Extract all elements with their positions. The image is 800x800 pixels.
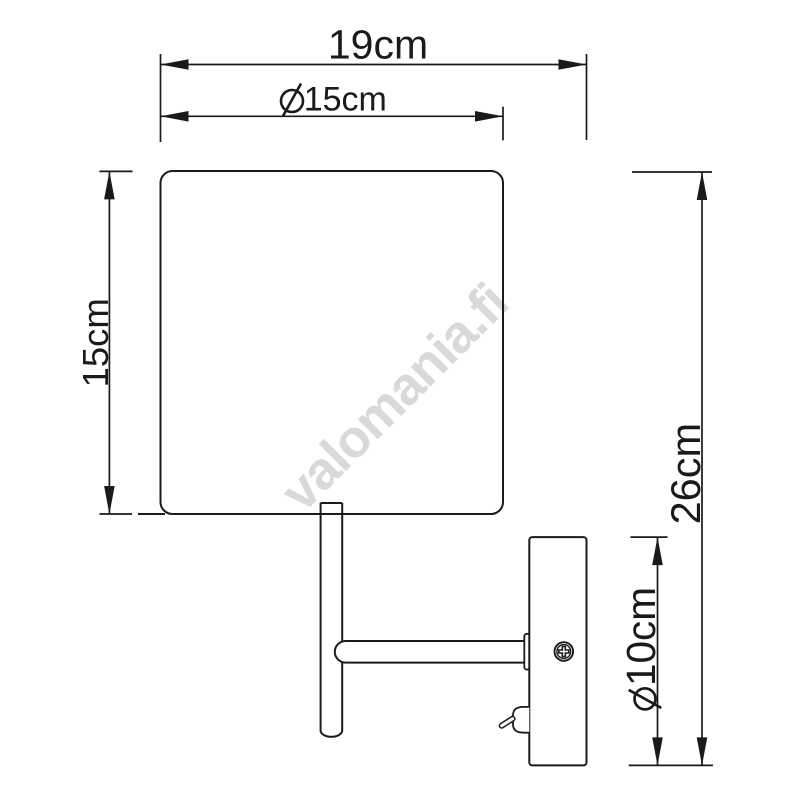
svg-text:15cm: 15cm	[304, 81, 387, 119]
svg-text:15cm: 15cm	[75, 298, 116, 387]
svg-text:26cm: 26cm	[662, 423, 709, 524]
svg-text:10cm: 10cm	[618, 587, 664, 686]
svg-text:19cm: 19cm	[328, 22, 428, 68]
